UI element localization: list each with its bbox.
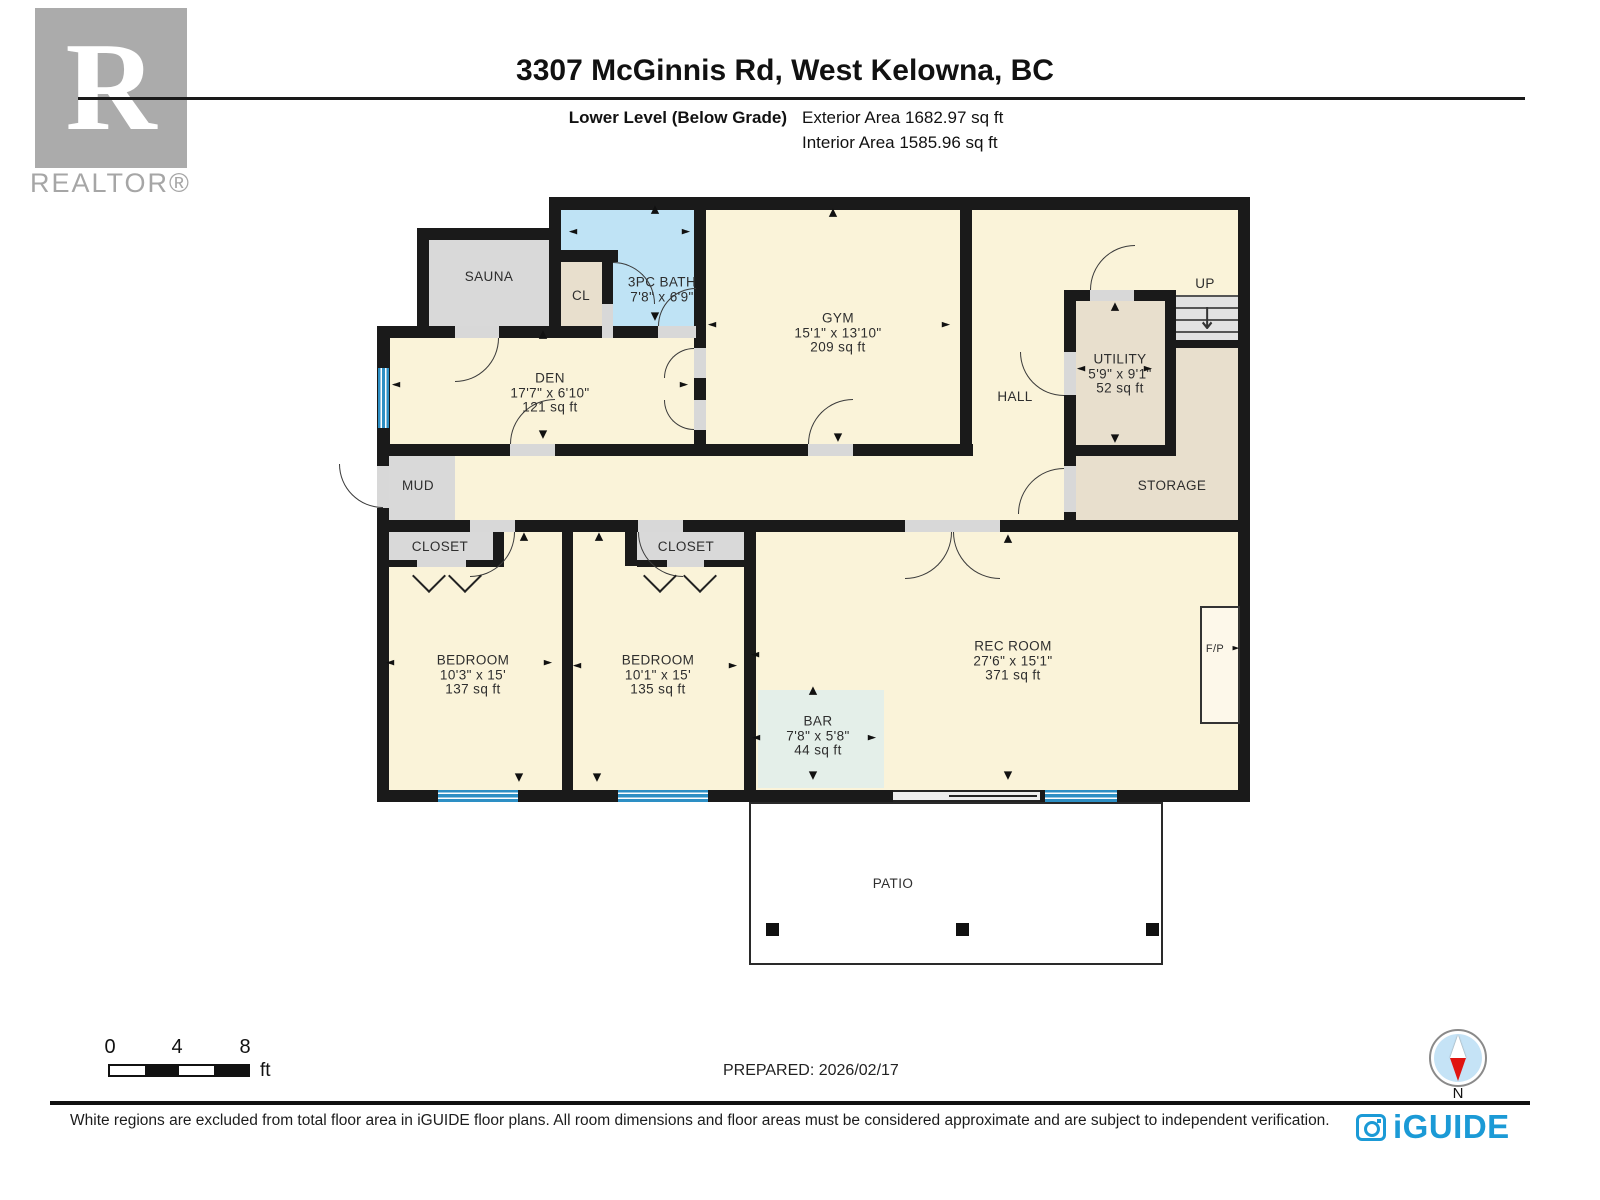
wall	[417, 228, 561, 240]
dimension-arrow-icon	[834, 432, 842, 443]
dimension-arrow-icon	[595, 531, 603, 542]
dimension-arrow-icon	[544, 657, 552, 668]
dimension-arrow-icon	[751, 649, 759, 660]
room-label-closet2: CLOSET	[658, 540, 714, 555]
room-label-closet1: CLOSET	[412, 540, 468, 555]
room-label-sauna: SAUNA	[465, 270, 514, 285]
fireplace	[1200, 606, 1240, 724]
wall	[602, 262, 613, 304]
door-arc	[339, 464, 383, 508]
room-name: HALL	[997, 390, 1032, 405]
room-name: CLOSET	[412, 540, 468, 555]
room-name: F/P	[1206, 642, 1224, 657]
compass-icon	[1429, 1029, 1487, 1087]
dimension-arrow-icon	[1004, 533, 1012, 544]
wall	[1176, 340, 1238, 348]
window	[1045, 790, 1117, 802]
patio-outline	[749, 802, 1163, 965]
wall	[377, 444, 973, 456]
room-name: STORAGE	[1138, 479, 1207, 494]
room-label-bedroom2: BEDROOM 10'1" x 15' 135 sq ft	[622, 653, 695, 697]
door-opening	[1064, 466, 1076, 512]
dimension-arrow-icon	[868, 732, 876, 743]
door-opening	[455, 326, 499, 338]
dimension-arrow-icon	[539, 429, 547, 440]
dimension-arrow-icon	[515, 772, 523, 783]
dimension-arrow-icon	[651, 311, 659, 322]
iguide-logo: iGUIDE	[1356, 1108, 1510, 1146]
dimension-arrow-icon	[539, 329, 547, 340]
dimension-arrow-icon	[1077, 363, 1085, 374]
dimension-arrow-icon	[1111, 301, 1119, 312]
dimension-arrow-icon	[729, 660, 737, 671]
storage-fill	[1176, 348, 1238, 526]
room-name: CLOSET	[658, 540, 714, 555]
dimension-arrow-icon	[1144, 363, 1152, 374]
door-opening	[602, 304, 613, 338]
iguide-logo-text: iGUIDE	[1393, 1108, 1510, 1146]
scale-tick-8: 8	[239, 1036, 250, 1059]
wall	[625, 532, 637, 566]
room-dims: 7'8" x 5'8"	[786, 729, 849, 744]
dimension-arrow-icon	[386, 657, 394, 668]
room-name: MUD	[402, 479, 434, 494]
room-dims: 7'8" x 6'9"	[628, 290, 696, 305]
wall	[1165, 290, 1176, 456]
wall	[1064, 445, 1176, 456]
realtor-logo: R	[35, 8, 187, 168]
room-name: UTILITY	[1088, 352, 1151, 367]
room-label-storage: STORAGE	[1138, 479, 1207, 494]
window	[378, 368, 389, 428]
room-name: BAR	[786, 714, 849, 729]
room-label-mud: MUD	[402, 479, 434, 494]
door-opening	[1064, 352, 1076, 395]
wall	[704, 560, 744, 567]
stair-tread	[1176, 295, 1238, 297]
realtor-logo-letter: R	[66, 25, 157, 151]
room-label-utility: UTILITY 5'9" x 9'1" 52 sq ft	[1088, 352, 1151, 396]
dimension-arrow-icon	[593, 772, 601, 783]
compass-needle-north	[1450, 1035, 1466, 1058]
disclaimer-text: White regions are excluded from total fl…	[70, 1112, 1330, 1130]
wall	[549, 197, 561, 338]
room-area: 371 sq ft	[973, 668, 1052, 683]
room-label-cl: CL	[572, 289, 590, 304]
dimension-arrow-icon	[1004, 770, 1012, 781]
patio-post	[1146, 923, 1159, 936]
dimension-arrow-icon	[1111, 433, 1119, 444]
scale-segment	[145, 1066, 180, 1075]
room-name: UP	[1195, 277, 1215, 292]
room-dims: 10'3" x 15'	[437, 668, 510, 683]
room-area: 52 sq ft	[1088, 381, 1151, 396]
dimension-arrow-icon	[708, 319, 716, 330]
room-name: PATIO	[873, 877, 914, 892]
room-dims: 27'6" x 15'1"	[973, 654, 1052, 669]
room-area: 121 sq ft	[510, 400, 589, 415]
room-name: BEDROOM	[437, 653, 510, 668]
wall	[960, 197, 972, 456]
window	[618, 790, 708, 802]
room-name: DEN	[510, 371, 589, 386]
room-dims: 5'9" x 9'1"	[1088, 367, 1151, 382]
realtor-logo-text: REALTOR®	[30, 168, 191, 199]
room-dims: 10'1" x 15'	[622, 668, 695, 683]
room-label-den: DEN 17'7" x 6'10" 121 sq ft	[510, 371, 589, 415]
room-label-up: UP	[1195, 277, 1215, 292]
room-name: CL	[572, 289, 590, 304]
door-opening	[510, 444, 555, 456]
exterior-area-label: Exterior Area 1682.97 sq ft	[802, 108, 1003, 128]
compass-needle-south	[1450, 1058, 1466, 1081]
dimension-arrow-icon	[829, 207, 837, 218]
room-dims: 15'1" x 13'10"	[794, 326, 881, 341]
dimension-arrow-icon	[809, 685, 817, 696]
prepared-date: PREPARED: 2026/02/17	[723, 1062, 899, 1080]
dimension-arrow-icon	[520, 531, 528, 542]
dimension-arrow-icon	[392, 379, 400, 390]
dimension-arrow-icon	[569, 226, 577, 237]
floorplan-page: R REALTOR® 3307 McGinnis Rd, West Kelown…	[0, 0, 1600, 1200]
room-label-bar: BAR 7'8" x 5'8" 44 sq ft	[786, 714, 849, 758]
room-label-hall: HALL	[997, 390, 1032, 405]
iguide-camera-icon	[1356, 1114, 1386, 1141]
scale-bar	[108, 1064, 250, 1077]
door-opening	[694, 348, 706, 378]
compass-north-label: N	[1448, 1085, 1468, 1102]
window	[438, 790, 518, 802]
patio-post	[766, 923, 779, 936]
fireplace-arrow-icon	[1233, 645, 1240, 654]
room-label-bath: 3PC BATH 7'8" x 6'9"	[628, 276, 696, 305]
room-dims: 17'7" x 6'10"	[510, 386, 589, 401]
wall	[562, 532, 573, 790]
room-area: 44 sq ft	[786, 743, 849, 758]
interior-area-label: Interior Area 1585.96 sq ft	[802, 133, 998, 153]
scale-segment	[214, 1066, 249, 1075]
door-opening	[808, 444, 853, 456]
door-opening	[658, 326, 696, 338]
room-area: 209 sq ft	[794, 340, 881, 355]
room-area: 137 sq ft	[437, 682, 510, 697]
dimension-arrow-icon	[651, 204, 659, 215]
room-name: GYM	[794, 311, 881, 326]
dimension-arrow-icon	[809, 770, 817, 781]
scale-segment	[179, 1066, 214, 1075]
door-opening	[638, 520, 683, 532]
scale-tick-4: 4	[171, 1036, 182, 1059]
room-label-gym: GYM 15'1" x 13'10" 209 sq ft	[794, 311, 881, 355]
stairs-down-arrow-icon	[1197, 302, 1217, 337]
room-name: REC ROOM	[973, 639, 1052, 654]
room-label-bedroom1: BEDROOM 10'3" x 15' 137 sq ft	[437, 653, 510, 697]
door-opening	[694, 400, 706, 430]
level-label: Lower Level (Below Grade)	[500, 108, 787, 128]
door-opening	[470, 520, 515, 532]
wall	[744, 532, 756, 790]
room-name: SAUNA	[465, 270, 514, 285]
dimension-arrow-icon	[942, 319, 950, 330]
footer-rule	[50, 1101, 1530, 1105]
room-area: 135 sq ft	[622, 682, 695, 697]
scale-segment	[110, 1066, 145, 1075]
door-opening	[905, 520, 1000, 532]
wall	[561, 250, 618, 262]
room-name: 3PC BATH	[628, 276, 696, 291]
room-label-patio: PATIO	[873, 877, 914, 892]
room-label-recroom: REC ROOM 27'6" x 15'1" 371 sq ft	[973, 639, 1052, 683]
room-label-fireplace: F/P	[1206, 642, 1224, 657]
sliding-door	[893, 790, 1040, 802]
room-name: BEDROOM	[622, 653, 695, 668]
dimension-arrow-icon	[573, 660, 581, 671]
dimension-arrow-icon	[752, 732, 760, 743]
scale-unit: ft	[260, 1060, 271, 1082]
wall	[417, 228, 429, 326]
wall	[389, 560, 417, 567]
title-rule	[78, 97, 1525, 100]
page-title: 3307 McGinnis Rd, West Kelowna, BC	[180, 54, 1390, 88]
patio-post	[956, 923, 969, 936]
scale-tick-0: 0	[104, 1036, 115, 1059]
dimension-arrow-icon	[682, 226, 690, 237]
dimension-arrow-icon	[680, 379, 688, 390]
sliding-door-panel	[949, 795, 1037, 797]
